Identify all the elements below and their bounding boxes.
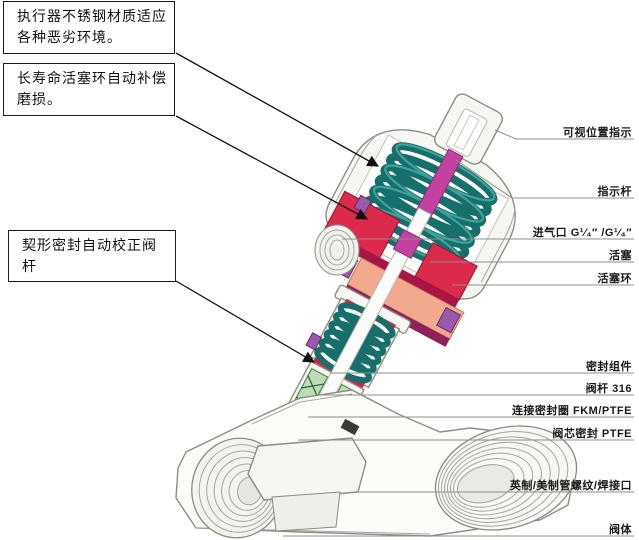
label-piston: 活塞 (609, 247, 632, 263)
callout-actuator-material: 执行器不锈钢材质适应各种恶劣环境。 (3, 1, 175, 54)
label-pipe-thread: 英制/美制管螺纹/焊接口 (510, 477, 632, 493)
label-plug-seal: 阀芯密封 PTFE (552, 425, 632, 441)
air-inlet-boss (315, 225, 359, 275)
label-position-indicator: 可视位置指示 (563, 124, 632, 140)
label-connection-seal: 连接密封圈 FKM/PTFE (512, 402, 632, 418)
label-indicator-rod: 指示杆 (598, 183, 633, 199)
label-seal-assembly: 密封组件 (586, 358, 632, 374)
label-air-inlet: 进气口 G¹⁄₄″ /G¹⁄₄″ (533, 224, 632, 240)
label-valve-body: 阀体 (609, 521, 632, 537)
callout-piston-ring-wear: 长寿命活塞环自动补偿磨损。 (3, 63, 175, 116)
gland-nut (248, 438, 366, 500)
gland-lower (272, 492, 340, 531)
diagram-canvas: 执行器不锈钢材质适应各种恶劣环境。 长寿命活塞环自动补偿磨损。 契形密封自动校正… (0, 0, 639, 540)
callout-wedge-seal: 契形密封自动校正阀杆 (8, 230, 176, 282)
label-piston-ring: 活塞环 (598, 270, 633, 286)
label-valve-stem: 阀杆 316 (586, 380, 632, 396)
